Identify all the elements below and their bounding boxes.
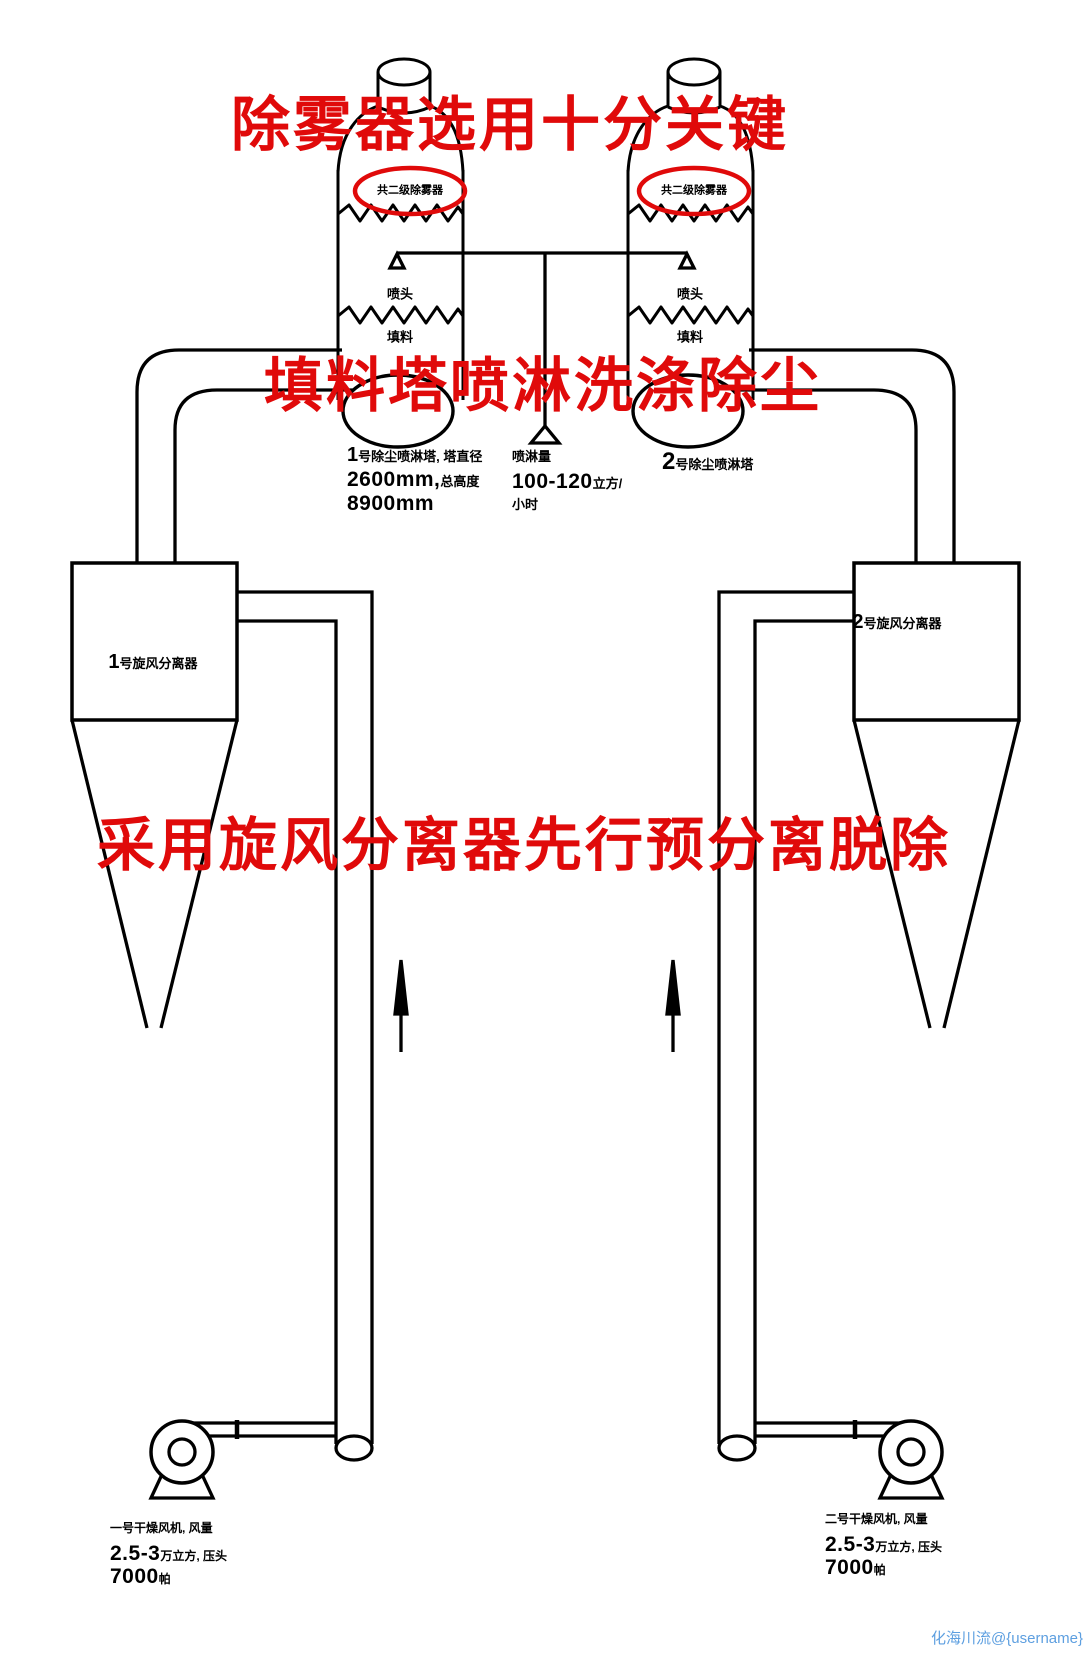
- tower2-label-block: 2号除尘喷淋塔: [662, 448, 753, 472]
- flow-arrow-up-right: [667, 960, 679, 1052]
- flow-arrow-up-left: [395, 960, 407, 1052]
- cyclone-right-label: 2号旋风分离器: [852, 612, 941, 632]
- tower1-height-label: 总高度: [440, 474, 479, 489]
- annotation-title-top: 除雾器选用十分关键: [231, 96, 789, 155]
- fan-left-symbol: [151, 1421, 213, 1498]
- tower1-number: 1: [347, 444, 358, 466]
- spray-rate-label: 喷淋量: [512, 449, 551, 464]
- fan-right-pressure-unit: 帕: [874, 1563, 886, 1577]
- spray-rate-value: 100-120: [512, 470, 593, 493]
- cyclone-right-symbol: [854, 563, 1019, 1028]
- mist-eliminator-note-right: 共二级除雾器: [661, 186, 727, 197]
- fan-left-flow-suffix: 万立方, 压头: [160, 1549, 227, 1563]
- spray-rate-unit1: 立方/: [593, 476, 623, 491]
- cyclone-right-number: 2: [852, 611, 863, 633]
- cyclone-right-name: 号旋风分离器: [864, 616, 942, 631]
- mist-eliminator-note-left: 共二级除雾器: [377, 186, 443, 197]
- riser-duct-left: [237, 592, 372, 1460]
- cyclone-left-name: 号旋风分离器: [120, 656, 198, 671]
- fan-right-spec-block: 二号干燥风机, 风量 2.5-3万立方, 压头 7000帕: [825, 1510, 942, 1579]
- fan-right-flow-suffix: 万立方, 压头: [875, 1540, 942, 1554]
- nozzle-label-left: 喷头: [387, 288, 413, 301]
- fan-left-spec-block: 一号干燥风机, 风量 2.5-3万立方, 压头 7000帕: [110, 1519, 227, 1588]
- fan-right-name: 二号干燥风机, 风量: [825, 1512, 928, 1526]
- cyclone-left-symbol: [72, 563, 237, 1028]
- packing-label-left: 填料: [387, 331, 413, 344]
- tower1-name: 号除尘喷淋塔, 塔直径: [358, 449, 482, 464]
- cyclone-left-label: 1号旋风分离器: [108, 652, 197, 672]
- nozzle-label-right: 喷头: [677, 288, 703, 301]
- process-flow-diagram: 共二级除雾器 共二级除雾器 喷头 喷头 填料 填料 1号除尘喷淋塔, 塔直径 2…: [0, 0, 1091, 1654]
- spray-rate-block: 喷淋量 100-120立方/ 小时: [512, 446, 622, 518]
- watermark: 化海川流@{username}: [931, 1627, 1083, 1648]
- fan-right-pressure-value: 7000: [825, 1556, 874, 1579]
- tower1-spec-block: 1号除尘喷淋塔, 塔直径 2600mm,总高度 8900mm: [347, 444, 482, 516]
- fan-left-pressure-value: 7000: [110, 1565, 159, 1588]
- fan-right-symbol: [880, 1421, 942, 1498]
- annotation-title-bottom: 采用旋风分离器先行预分离脱除: [97, 817, 951, 875]
- annotation-title-middle: 填料塔喷淋洗涤除尘: [264, 357, 822, 416]
- riser-duct-right: [719, 592, 854, 1460]
- fan-left-pressure-unit: 帕: [159, 1572, 171, 1586]
- fan-left-flow-value: 2.5-3: [110, 1542, 160, 1565]
- fan-right-flow-value: 2.5-3: [825, 1533, 875, 1556]
- cyclone-left-number: 1: [108, 651, 119, 673]
- tower2-number: 2: [662, 448, 675, 475]
- tower1-height-value: 8900mm: [347, 492, 434, 515]
- packing-label-right: 填料: [677, 331, 703, 344]
- fan-left-name: 一号干燥风机, 风量: [110, 1521, 213, 1535]
- tower1-diameter: 2600mm,: [347, 468, 440, 491]
- tower2-name: 号除尘喷淋塔: [675, 457, 753, 472]
- spray-rate-unit2: 小时: [512, 497, 538, 512]
